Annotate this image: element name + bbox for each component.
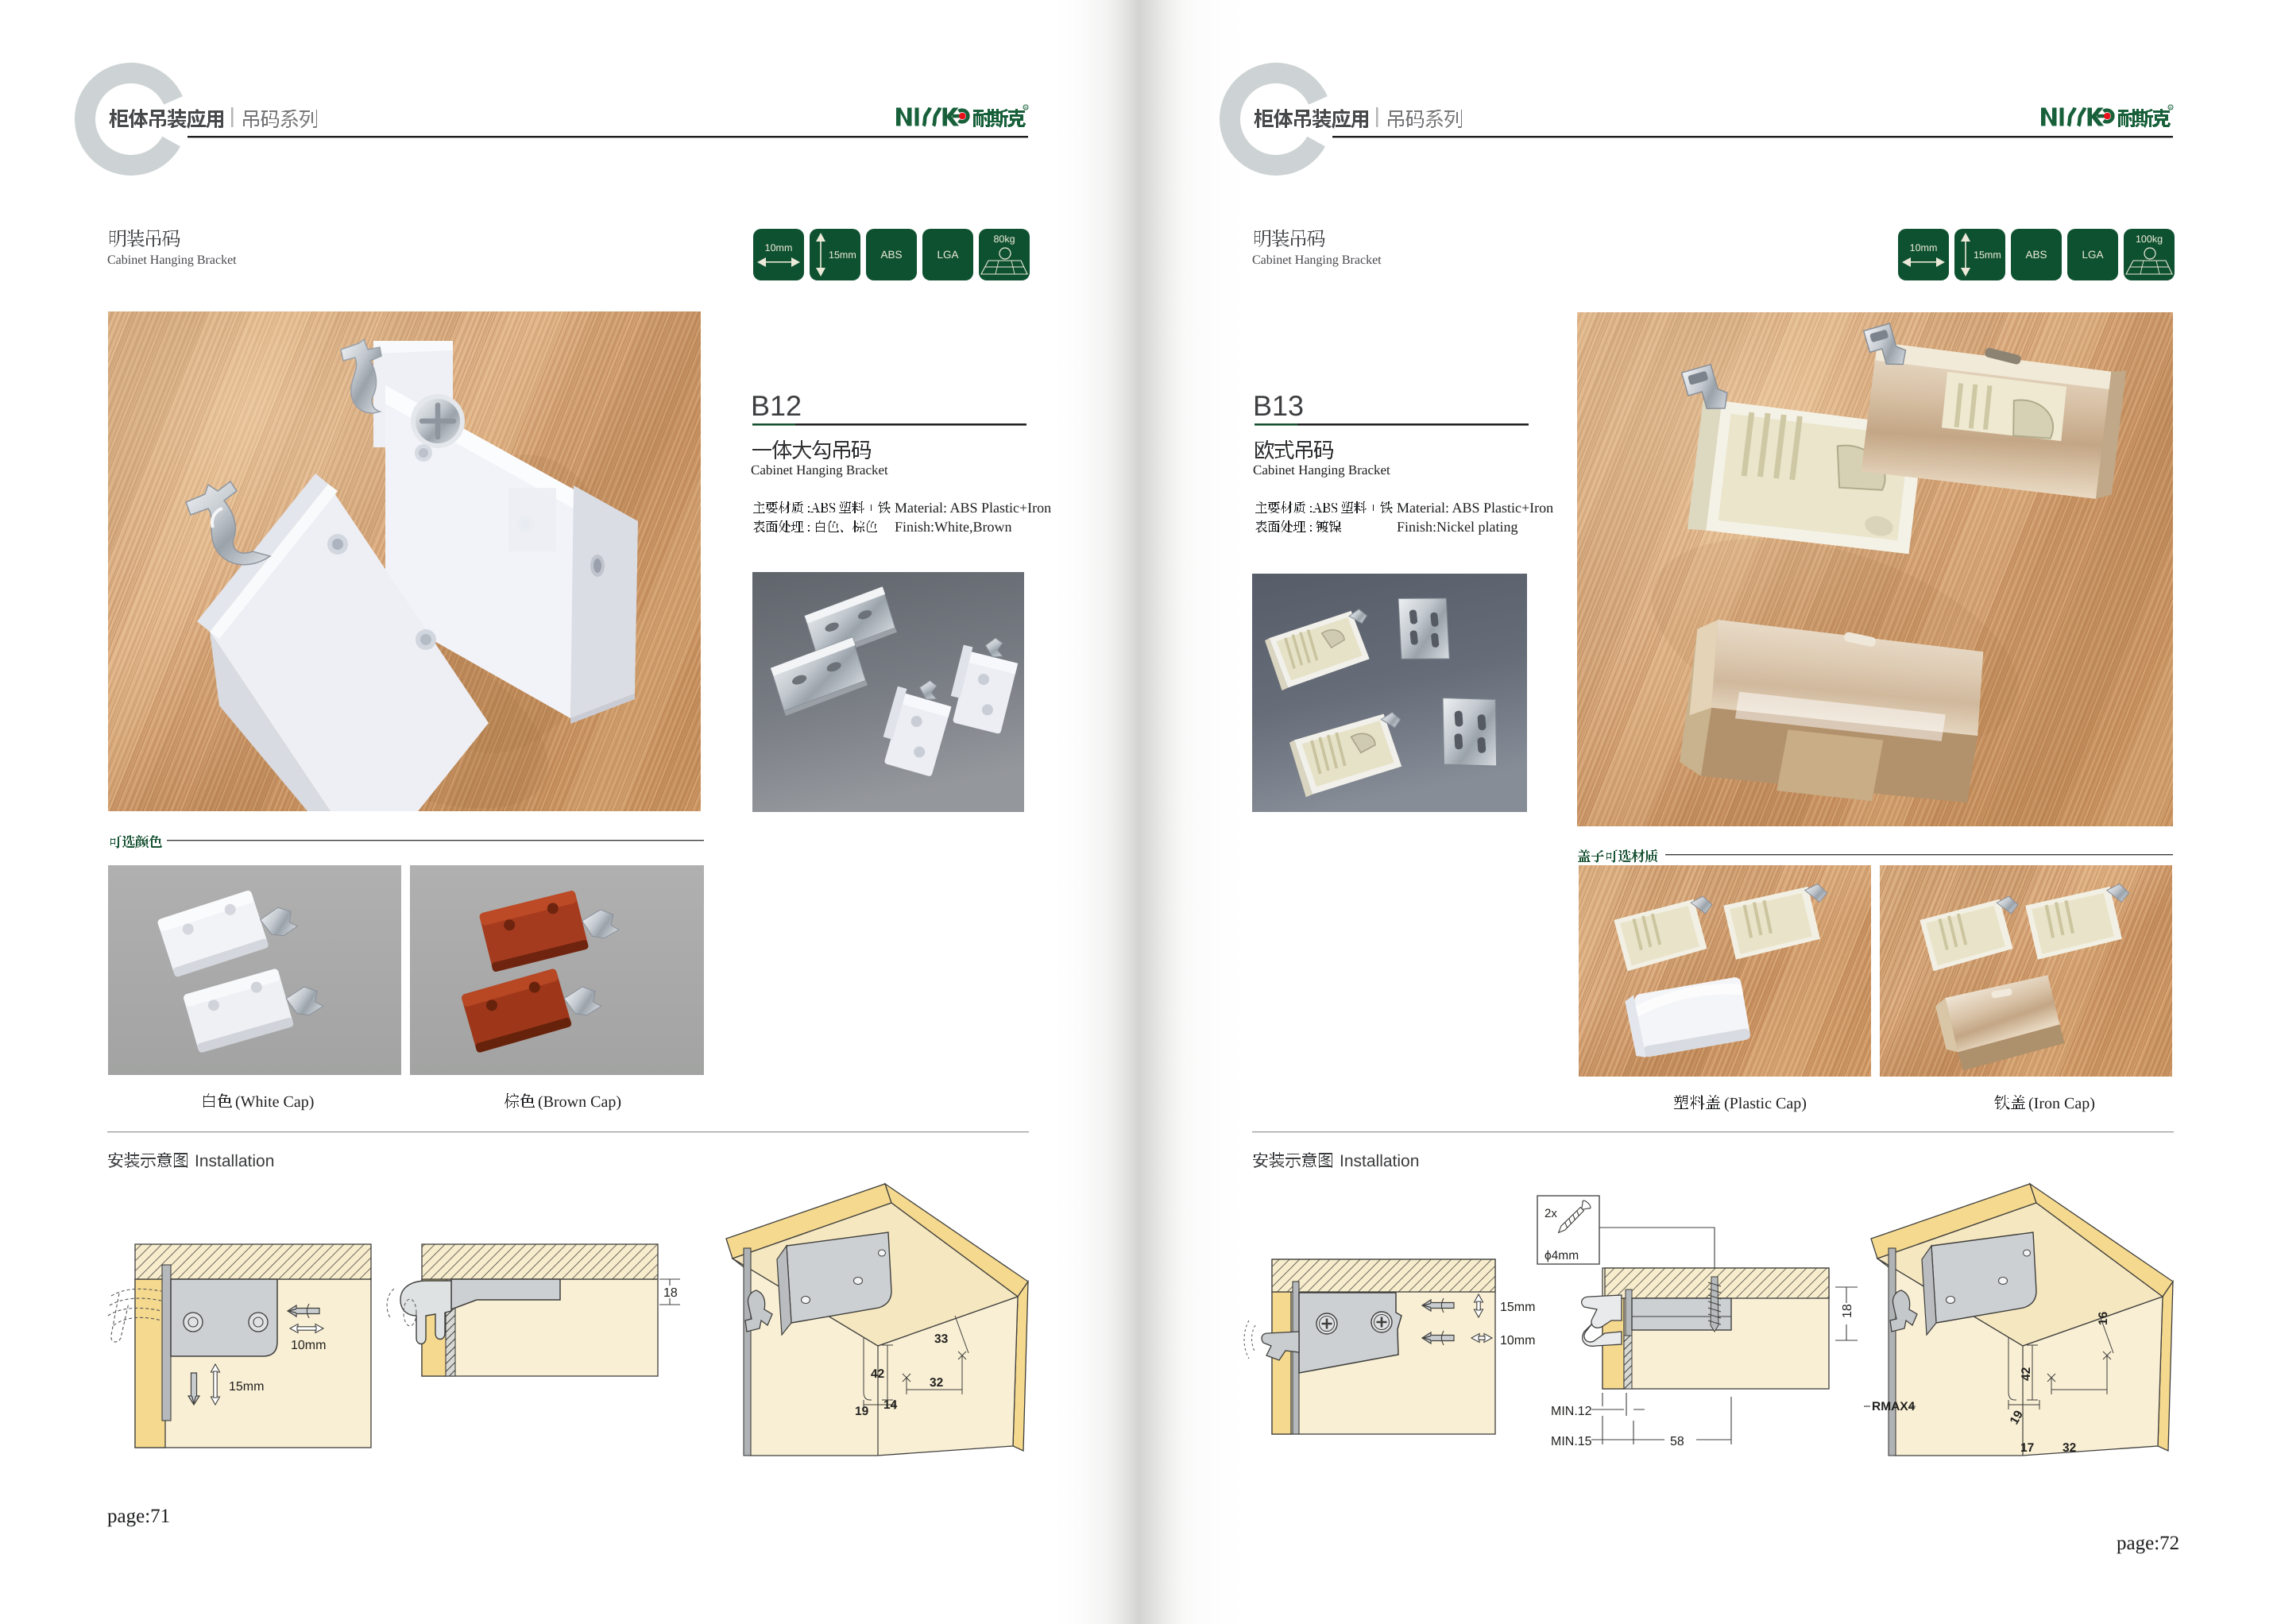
svg-text:RMAX4: RMAX4 [1872,1400,1916,1413]
svg-text:LGA: LGA [2082,249,2103,261]
svg-text:42: 42 [871,1367,884,1381]
svg-text:page:72: page:72 [2117,1533,2179,1554]
svg-text:10mm: 10mm [1500,1334,1535,1348]
svg-text:15mm: 15mm [229,1380,264,1394]
svg-text:page:71: page:71 [107,1506,170,1527]
svg-text:14: 14 [883,1398,898,1412]
svg-text:18: 18 [1841,1304,1854,1318]
svg-text:17: 17 [2020,1441,2034,1455]
svg-text:18: 18 [663,1286,678,1300]
svg-text:Cabinet Hanging Bracket: Cabinet Hanging Bracket [107,253,237,267]
svg-text:Finish:Nickel plating: Finish:Nickel plating [1397,519,1518,535]
svg-text:15mm: 15mm [1974,249,2001,261]
svg-text:2x: 2x [1545,1207,1557,1220]
svg-text:MIN.12: MIN.12 [1551,1405,1592,1418]
svg-text:Finish:White,Brown: Finish:White,Brown [895,519,1012,535]
svg-text:Material: ABS Plastic+Iron: Material: ABS Plastic+Iron [1397,500,1553,516]
svg-text:Installation: Installation [1340,1152,1419,1170]
svg-text:42: 42 [2020,1367,2033,1381]
svg-text:(Plastic Cap): (Plastic Cap) [1724,1095,1807,1112]
svg-text:10mm: 10mm [291,1339,326,1352]
svg-text:100kg: 100kg [2136,234,2163,245]
svg-text:58: 58 [1670,1435,1684,1448]
svg-text:Cabinet Hanging Bracket: Cabinet Hanging Bracket [1253,462,1390,478]
svg-text:MIN.15: MIN.15 [1551,1435,1592,1448]
svg-text:(Iron Cap): (Iron Cap) [2028,1095,2095,1112]
svg-text:LGA: LGA [937,249,958,261]
svg-text:B13: B13 [1253,389,1304,422]
svg-text:10mm: 10mm [1910,242,1938,253]
svg-text:80kg: 80kg [993,234,1015,245]
svg-text:ABS: ABS [880,249,902,261]
svg-text:Installation: Installation [195,1152,274,1170]
svg-text:32: 32 [930,1376,943,1390]
svg-text:32: 32 [2063,1441,2076,1455]
svg-text:15mm: 15mm [1500,1301,1535,1314]
svg-text:10mm: 10mm [765,242,793,253]
svg-text:ABS: ABS [2025,249,2047,261]
svg-text:B12: B12 [751,389,802,422]
svg-text:(Brown Cap): (Brown Cap) [538,1093,621,1111]
svg-text:ϕ4mm: ϕ4mm [1545,1249,1579,1262]
svg-text:Cabinet Hanging Bracket: Cabinet Hanging Bracket [751,462,888,478]
svg-text:Cabinet Hanging Bracket: Cabinet Hanging Bracket [1252,253,1382,267]
svg-text:Material: ABS Plastic+Iron: Material: ABS Plastic+Iron [895,500,1051,516]
svg-text:15mm: 15mm [829,249,856,261]
svg-text:(White Cap): (White Cap) [235,1093,314,1111]
svg-text:33: 33 [934,1332,949,1346]
svg-text:16: 16 [2097,1311,2110,1325]
svg-text:19: 19 [855,1405,869,1418]
